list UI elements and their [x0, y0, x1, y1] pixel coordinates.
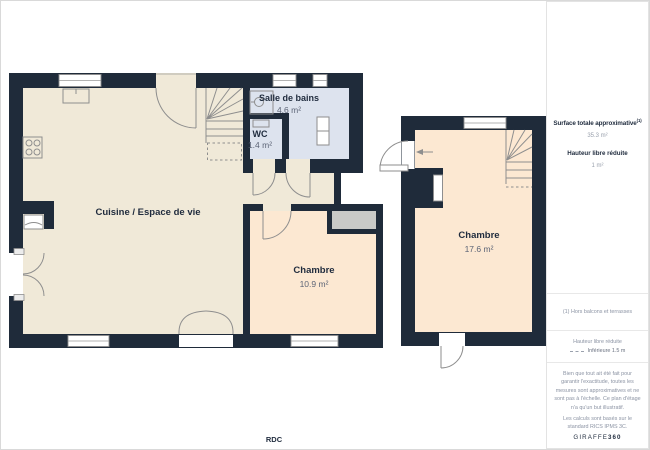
label-chambre1-area: 10.9 m² — [300, 279, 329, 289]
surface-title-sup: (1) — [637, 118, 642, 123]
label-chambre2-area: 17.6 m² — [465, 244, 494, 254]
reduced-height-label: Hauteur libre réduite — [547, 150, 648, 157]
building-left: Salle de bains 4.6 m² WC 1.4 m² Cuisine … — [9, 73, 383, 348]
shower-column — [317, 117, 329, 145]
bottom-door-right-building — [439, 333, 465, 368]
label-salle-de-bains-name: Salle de bains — [259, 93, 319, 103]
brand-text: GIRAFFE — [573, 434, 608, 441]
label-cuisine-name: Cuisine / Espace de vie — [95, 207, 200, 218]
window — [273, 75, 296, 87]
reduced-height-value: 1 m² — [547, 163, 648, 169]
label-chambre1-name: Chambre — [293, 265, 334, 276]
legend-section: Hauteur libre réduite Inférieure 1.5 m — [547, 330, 648, 362]
surface-title: Surface totale approximative(1) — [547, 118, 648, 127]
surface-value: 35.3 m² — [547, 133, 648, 139]
closet — [332, 211, 376, 229]
label-chambre2-name: Chambre — [458, 230, 499, 241]
window — [291, 336, 338, 347]
surface-title-text: Surface totale approximative — [553, 120, 636, 127]
brand-text-bold: 360 — [608, 434, 622, 441]
window — [464, 118, 506, 129]
entrance-door-right-building — [380, 141, 415, 171]
closet-wall-left — [327, 211, 332, 234]
giraffe360-logo: GIRAFFE360 — [573, 434, 621, 441]
footnote: (1) Hors balcons et terrasses — [563, 309, 632, 315]
window — [313, 75, 327, 87]
wall-niche — [415, 168, 443, 208]
floorplan-page: Salle de bains 4.6 m² WC 1.4 m² Cuisine … — [0, 0, 650, 450]
reduced-height-dash-icon — [570, 351, 584, 352]
footnote-section: (1) Hors balcons et terrasses — [547, 293, 648, 331]
floor-label: RDC — [266, 435, 283, 444]
window — [59, 75, 101, 87]
disclaimer-section: Bien que tout ait été fait pour garantir… — [547, 362, 648, 448]
disclaimer-text: Bien que tout ait été fait pour garantir… — [554, 370, 641, 412]
building-right: Chambre 17.6 m² — [380, 116, 546, 368]
window — [68, 336, 109, 347]
info-sidebar: Surface totale approximative(1) 35.3 m² … — [546, 1, 649, 449]
closet-wall-bottom — [332, 229, 376, 234]
surface-summary-section: Surface totale approximative(1) 35.3 m² … — [547, 2, 648, 293]
label-wc-area: 1.4 m² — [248, 140, 272, 150]
label-wc-name: WC — [253, 129, 268, 139]
legend-row: Inférieure 1.5 m — [570, 348, 626, 354]
wall-niche-fixture — [23, 201, 54, 229]
wc-wall-v — [282, 119, 289, 159]
hallway — [243, 173, 334, 204]
standard-note: Les calculs sont basés sur le standard R… — [557, 415, 638, 431]
legend-title: Hauteur libre réduite — [573, 339, 622, 345]
legend-value: Inférieure 1.5 m — [588, 348, 626, 354]
label-salle-de-bains-area: 4.6 m² — [277, 105, 301, 115]
